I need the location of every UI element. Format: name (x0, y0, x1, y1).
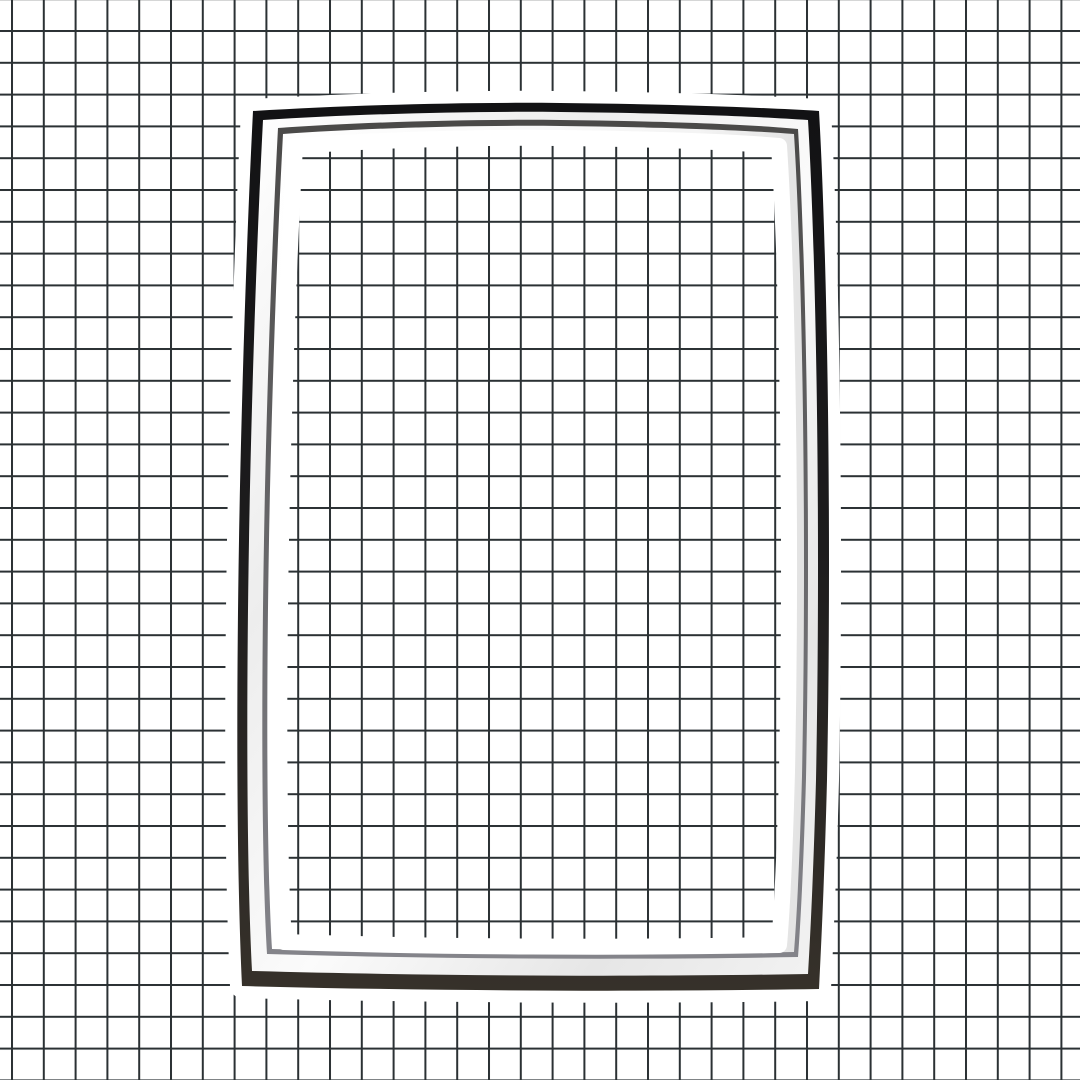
product-photo (0, 0, 1080, 1080)
product-photo-canvas (0, 0, 1080, 1080)
gasket-interior-window (279, 138, 789, 947)
